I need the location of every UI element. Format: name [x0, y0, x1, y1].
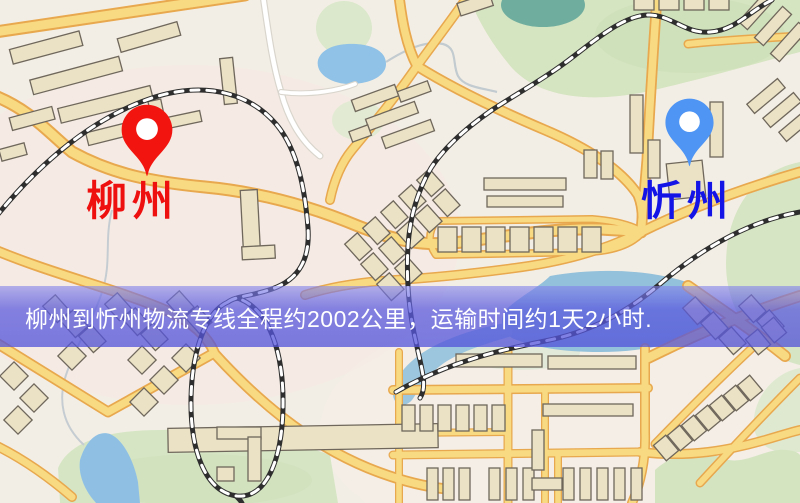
- route-info-banner: 柳州到忻州物流专线全程约2002公里，运输时间约1天2小时.: [0, 286, 800, 347]
- location-pin-icon: [665, 99, 713, 167]
- origin-city-label: 柳州: [86, 180, 178, 223]
- map-background: [0, 0, 800, 503]
- destination-location-pin[interactable]: [662, 97, 717, 168]
- location-pin-icon: [122, 105, 173, 176]
- map-view: 柳州 忻州 柳州到忻州物流专线全程约2002公里，运输时间约1天2小时.: [0, 0, 800, 503]
- destination-city-label: 忻州: [641, 180, 733, 223]
- route-info-text: 柳州到忻州物流专线全程约2002公里，运输时间约1天2小时.: [0, 300, 652, 334]
- pin-inner-dot: [679, 111, 700, 132]
- origin-location-pin[interactable]: [118, 103, 176, 178]
- pin-inner-dot: [136, 118, 158, 140]
